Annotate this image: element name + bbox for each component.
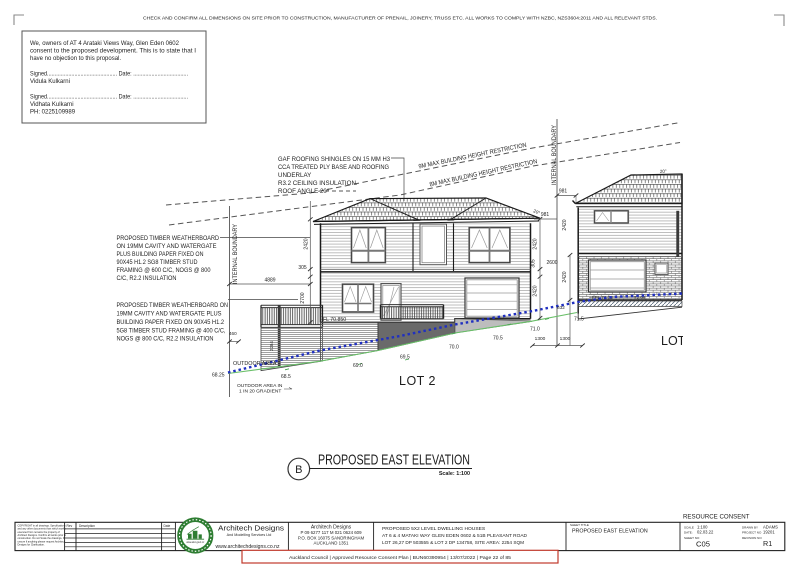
svg-text:20°: 20° (660, 169, 667, 174)
svg-text:OUTDOOR AREA: OUTDOOR AREA (233, 361, 277, 367)
svg-text:2600: 2600 (546, 260, 557, 266)
svg-text:AUCKLAND 1351: AUCKLAND 1351 (314, 541, 349, 546)
svg-text:2700: 2700 (300, 292, 306, 303)
svg-text:www.architechdesigns.co.nz: www.architechdesigns.co.nz (216, 544, 280, 550)
svg-text:Date: Date (164, 524, 171, 528)
svg-text:Scale: 1:100: Scale: 1:100 (439, 471, 470, 477)
svg-text:19MM CAVITY AND WATERGATE PLUS: 19MM CAVITY AND WATERGATE PLUS (117, 310, 222, 317)
svg-text:02.03.22: 02.03.22 (697, 529, 714, 534)
svg-text:Architech Designs: Architech Designs (218, 524, 284, 533)
svg-text:4889: 4889 (264, 278, 275, 284)
svg-text:NOGS @ 800 C/C, R2.2 INSULATIO: NOGS @ 800 C/C, R2.2 INSULATION (117, 336, 214, 343)
svg-text:FRAMING @ 600 C/C, NOGS @ 800: FRAMING @ 600 C/C, NOGS @ 800 (117, 267, 212, 274)
svg-text:2420: 2420 (562, 271, 568, 282)
svg-text:Vidhata Kulkarni: Vidhata Kulkarni (30, 102, 74, 108)
svg-text:LOT 2: LOT 2 (399, 374, 436, 388)
svg-text:CCA TREATED PLY BASE AND ROOFI: CCA TREATED PLY BASE AND ROOFING (278, 164, 389, 171)
svg-text:Signed........................: Signed..................................… (30, 95, 188, 101)
svg-text:70.0: 70.0 (449, 345, 459, 351)
svg-text:LOT 1: LOT 1 (661, 334, 696, 348)
svg-text:UNDERLAY: UNDERLAY (278, 172, 311, 179)
svg-text:AT 6 & 4 MATAKI WAY GLEN EDEN: AT 6 & 4 MATAKI WAY GLEN EDEN 0602 & 51B… (382, 533, 527, 539)
svg-text:2420: 2420 (562, 219, 568, 230)
svg-text:71.5: 71.5 (574, 317, 584, 323)
svg-text:1300: 1300 (560, 336, 571, 342)
svg-text:2420: 2420 (533, 285, 539, 296)
svg-text:ROOF ANGLE 20°: ROOF ANGLE 20° (278, 188, 330, 195)
svg-text:20°: 20° (533, 208, 541, 215)
svg-text:Signed........................: Signed..................................… (30, 72, 188, 78)
svg-text:Rev: Rev (67, 524, 73, 528)
svg-text:70.5: 70.5 (493, 336, 503, 342)
svg-text:305: 305 (298, 265, 307, 271)
svg-text:90X45 H1.2 SG8 TIMBER STUD: 90X45 H1.2 SG8 TIMBER STUD (117, 259, 198, 266)
svg-text:INTERNAL BOUNDARY: INTERNAL BOUNDARY (552, 125, 558, 185)
svg-text:2284: 2284 (269, 341, 274, 351)
svg-text:Auckland Council | Approve: Auckland Council | Approved Resource Con… (289, 555, 511, 560)
svg-text:981: 981 (559, 189, 568, 195)
svg-text:DATE:: DATE: (684, 530, 693, 534)
svg-text:2420: 2420 (533, 238, 539, 249)
svg-text:LOT 26,27 DP 503555 & LOT 2: LOT 26,27 DP 503555 & LOT 2 DP 134758, S… (382, 540, 524, 546)
svg-text:DRAWN BY: DRAWN BY (742, 525, 758, 529)
svg-text:71.0: 71.0 (530, 327, 540, 333)
svg-text:And Modelling Services Ltd: And Modelling Services Ltd (227, 533, 272, 537)
svg-text:69.5: 69.5 (400, 355, 410, 361)
svg-text:C05: C05 (696, 540, 710, 549)
svg-text:consent to the proposed develo: consent to the proposed development. Thi… (30, 49, 196, 55)
svg-text:GAF ROOFING SHINGLES ON 15 MM: GAF ROOFING SHINGLES ON 15 MM H3 (278, 156, 391, 163)
svg-text:305: 305 (531, 259, 537, 268)
svg-text:68.5: 68.5 (281, 374, 291, 380)
svg-text:ON 19MM CAVITY AND WATERGATE: ON 19MM CAVITY AND WATERGATE (117, 243, 217, 250)
svg-text:1 IN 20 GRADIENT: 1 IN 20 GRADIENT (239, 389, 281, 395)
svg-text:PH: 0225109989: PH: 0225109989 (30, 110, 76, 116)
svg-text:R3.2 CEILING INSULATION.: R3.2 CEILING INSULATION. (278, 180, 358, 187)
svg-text:RESOURCE CONSENT: RESOURCE CONSENT (683, 514, 750, 521)
svg-text:INTERNAL BOUNDARY: INTERNAL BOUNDARY (233, 224, 239, 284)
svg-text:5G8 TIMBER STUD FRAMING @ 400: 5G8 TIMBER STUD FRAMING @ 400 C/C, (117, 327, 226, 334)
svg-text:CHECK AND CONFIRM ALL DIMENSIO: CHECK AND CONFIRM ALL DIMENSIONS ON SITE… (143, 16, 657, 22)
svg-text:have no objection to this prop: have no objection to this proposal. (30, 56, 121, 62)
svg-text:PLUS BUILDING PAPER FIXED ON: PLUS BUILDING PAPER FIXED ON (117, 251, 204, 258)
svg-text:Description: Description (79, 524, 95, 528)
svg-text:B: B (295, 464, 302, 476)
svg-text:632: 632 (557, 305, 565, 310)
svg-text:2420: 2420 (304, 238, 310, 249)
svg-text:PROPOSED EAST ELEVATION: PROPOSED EAST ELEVATION (318, 452, 470, 469)
svg-text:1300: 1300 (535, 336, 546, 342)
svg-text:P 09 6277 117 M 021 0624 60: P 09 6277 117 M 021 0624 609 (300, 530, 362, 535)
svg-text:We, owners of AT 4 Arataki Vie: We, owners of AT 4 Arataki Views Way, Gl… (30, 41, 180, 47)
svg-text:OUTDOOR AREA IN: OUTDOOR AREA IN (237, 383, 283, 389)
svg-text:BUILDING PAPER FIXED ON 90X45: BUILDING PAPER FIXED ON 90X45 H1.2 (117, 319, 225, 326)
svg-text:C/C, R2.2 INSULATION: C/C, R2.2 INSULATION (117, 275, 177, 282)
svg-text:981: 981 (541, 212, 550, 218)
svg-text:P.O. BOX 16075 SANDRINGHAM: P.O. BOX 16075 SANDRINGHAM (298, 535, 365, 540)
svg-text:PROPOSED TIMBER WEATHERBOARD O: PROPOSED TIMBER WEATHERBOARD ON (117, 302, 229, 309)
svg-text:www.abc.govt.nz: www.abc.govt.nz (186, 541, 205, 544)
svg-text:SCALE: SCALE (684, 525, 694, 529)
svg-text:R1: R1 (763, 539, 772, 548)
svg-text:68.25: 68.25 (212, 373, 225, 379)
svg-text:PROPOSED 5X2 LEVEL DWELLING HO: PROPOSED 5X2 LEVEL DWELLING HOUSES (382, 526, 486, 532)
svg-text:REVISION NO: REVISION NO (742, 536, 762, 540)
svg-text:Vidula Kulkarni: Vidula Kulkarni (30, 79, 70, 85)
svg-text:69.0: 69.0 (353, 363, 363, 369)
svg-text:SHEET TITLE: SHEET TITLE (570, 523, 589, 527)
svg-text:PROJECT NO: PROJECT NO (742, 530, 762, 534)
svg-text:19201: 19201 (763, 529, 775, 534)
svg-text:Designs for Clarification.: Designs for Clarification. (18, 544, 45, 547)
svg-text:460: 460 (229, 331, 237, 336)
svg-text:PROPOSED EAST ELEVATION: PROPOSED EAST ELEVATION (572, 529, 648, 535)
svg-text:PROPOSED TIMBER WEATHERBOARD: PROPOSED TIMBER WEATHERBOARD (117, 235, 220, 242)
